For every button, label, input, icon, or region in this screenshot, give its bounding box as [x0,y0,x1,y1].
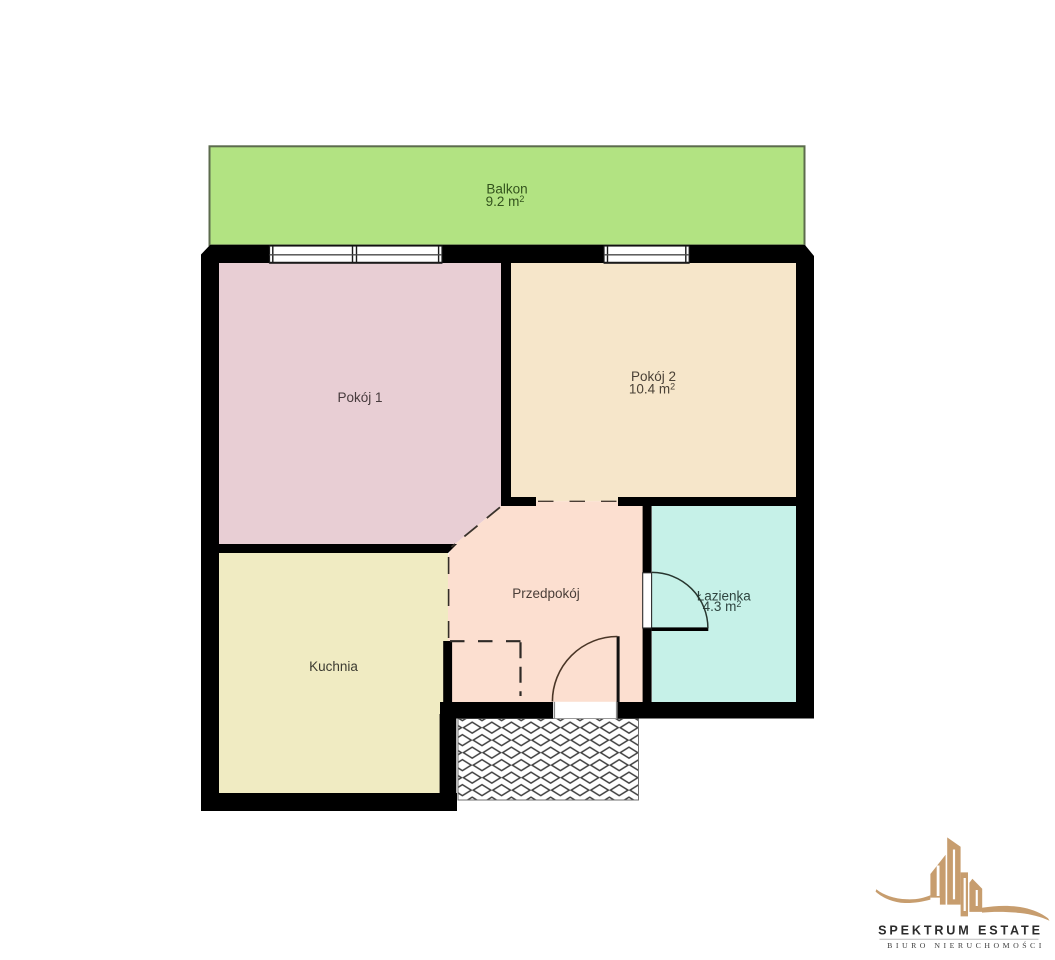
svg-text:Kuchnia: Kuchnia [309,659,358,674]
svg-text:4.3 m2: 4.3 m2 [703,599,742,614]
svg-text:BIURO NIERUCHOMOŚCI: BIURO NIERUCHOMOŚCI [887,940,1045,950]
svg-text:SPEKTRUM ESTATE: SPEKTRUM ESTATE [878,924,1043,938]
svg-text:9.2 m2: 9.2 m2 [486,194,525,209]
svg-text:Pokój 1: Pokój 1 [337,390,382,405]
svg-text:10.4 m2: 10.4 m2 [629,382,675,397]
svg-text:Przedpokój: Przedpokój [512,586,580,601]
